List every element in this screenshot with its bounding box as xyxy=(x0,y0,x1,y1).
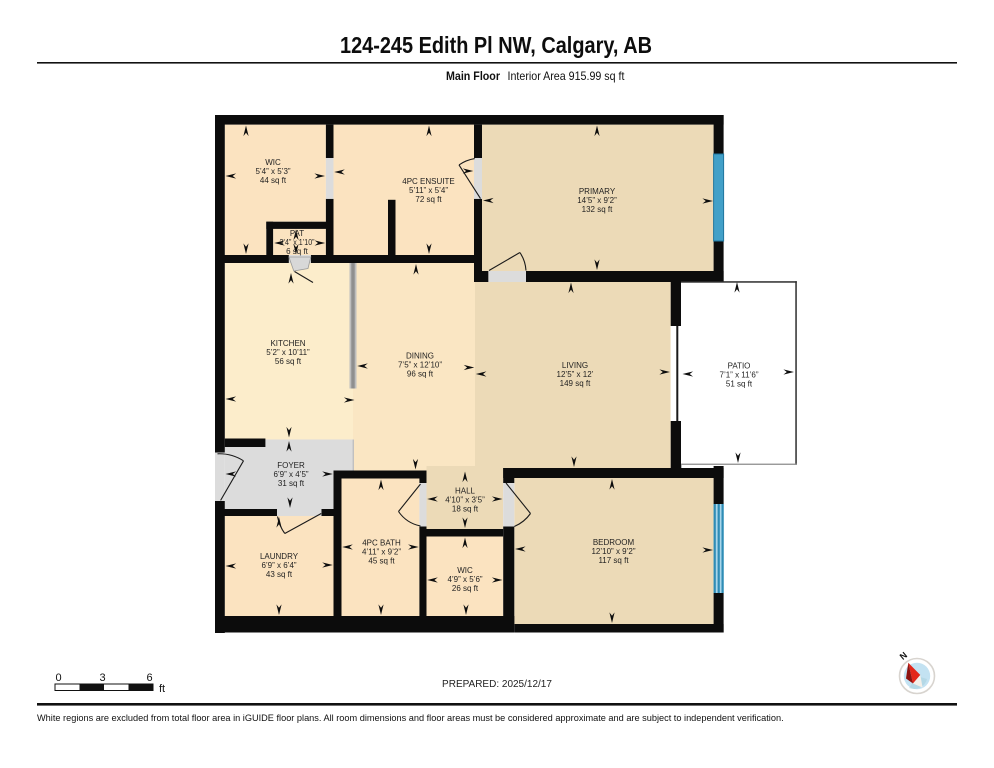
svg-text:7’5” x 12’10”: 7’5” x 12’10” xyxy=(398,361,442,370)
svg-text:6: 6 xyxy=(146,672,152,684)
svg-text:4’11” x 9’2”: 4’11” x 9’2” xyxy=(362,548,401,557)
svg-text:WIC: WIC xyxy=(457,566,473,575)
svg-text:44 sq ft: 44 sq ft xyxy=(260,176,287,185)
svg-text:HALL: HALL xyxy=(455,487,476,496)
svg-text:4PC BATH: 4PC BATH xyxy=(362,539,401,548)
svg-text:51 sq ft: 51 sq ft xyxy=(726,380,753,389)
svg-text:45 sq ft: 45 sq ft xyxy=(368,557,395,566)
svg-text:BEDROOM: BEDROOM xyxy=(593,538,635,547)
svg-text:DINING: DINING xyxy=(406,352,434,361)
svg-text:96 sq ft: 96 sq ft xyxy=(407,370,434,379)
svg-text:White regions are excluded fro: White regions are excluded from total fl… xyxy=(37,713,784,723)
svg-text:31 sq ft: 31 sq ft xyxy=(278,479,305,488)
svg-text:7’1” x 11’6”: 7’1” x 11’6” xyxy=(720,371,759,380)
svg-text:43 sq ft: 43 sq ft xyxy=(266,570,293,579)
svg-text:PREPARED: 2025/12/17: PREPARED: 2025/12/17 xyxy=(442,679,552,690)
svg-text:6’9” x 4’5”: 6’9” x 4’5” xyxy=(273,470,308,479)
svg-text:4PC ENSUITE: 4PC ENSUITE xyxy=(402,177,454,186)
svg-text:124-245 Edith Pl NW, Calgary,: 124-245 Edith Pl NW, Calgary, AB xyxy=(340,32,652,58)
svg-text:4’9” x 5’6”: 4’9” x 5’6” xyxy=(447,575,482,584)
svg-text:3’4” x 1’10”: 3’4” x 1’10” xyxy=(280,238,315,247)
svg-text:WIC: WIC xyxy=(265,158,281,167)
svg-text:PATIO: PATIO xyxy=(728,362,751,371)
svg-text:0: 0 xyxy=(55,672,61,684)
svg-text:5’11” x 5’4”: 5’11” x 5’4” xyxy=(409,186,448,195)
svg-text:12’10” x 9’2”: 12’10” x 9’2” xyxy=(591,547,635,556)
svg-text:5’2” x 10’11”: 5’2” x 10’11” xyxy=(266,348,310,357)
svg-text:3: 3 xyxy=(99,672,105,684)
svg-text:5’4” x 5’3”: 5’4” x 5’3” xyxy=(255,167,290,176)
svg-text:Interior Area 915.99 sq ft: Interior Area 915.99 sq ft xyxy=(508,69,626,83)
svg-text:4’10” x 3’5”: 4’10” x 3’5” xyxy=(445,496,485,505)
svg-text:KITCHEN: KITCHEN xyxy=(270,339,305,348)
svg-text:56 sq ft: 56 sq ft xyxy=(275,357,302,366)
svg-text:26 sq ft: 26 sq ft xyxy=(452,584,479,593)
svg-text:18 sq ft: 18 sq ft xyxy=(452,505,479,514)
svg-text:72 sq ft: 72 sq ft xyxy=(415,195,442,204)
svg-text:FOYER: FOYER xyxy=(277,461,305,470)
svg-text:ft: ft xyxy=(159,683,165,695)
svg-text:PRIMARY: PRIMARY xyxy=(579,187,616,196)
svg-text:14’5” x 9’2”: 14’5” x 9’2” xyxy=(577,196,617,205)
svg-text:Main Floor: Main Floor xyxy=(446,69,500,83)
svg-text:117 sq ft: 117 sq ft xyxy=(598,556,629,565)
svg-text:6’9” x 6’4”: 6’9” x 6’4” xyxy=(261,561,296,570)
svg-text:6 sq ft: 6 sq ft xyxy=(286,247,309,256)
svg-text:LAUNDRY: LAUNDRY xyxy=(260,552,299,561)
svg-text:149 sq ft: 149 sq ft xyxy=(560,379,591,388)
svg-text:12’5” x 12’: 12’5” x 12’ xyxy=(557,370,594,379)
svg-text:LIVING: LIVING xyxy=(562,361,588,370)
svg-text:132 sq ft: 132 sq ft xyxy=(582,205,613,214)
svg-text:PAT: PAT xyxy=(290,229,304,238)
